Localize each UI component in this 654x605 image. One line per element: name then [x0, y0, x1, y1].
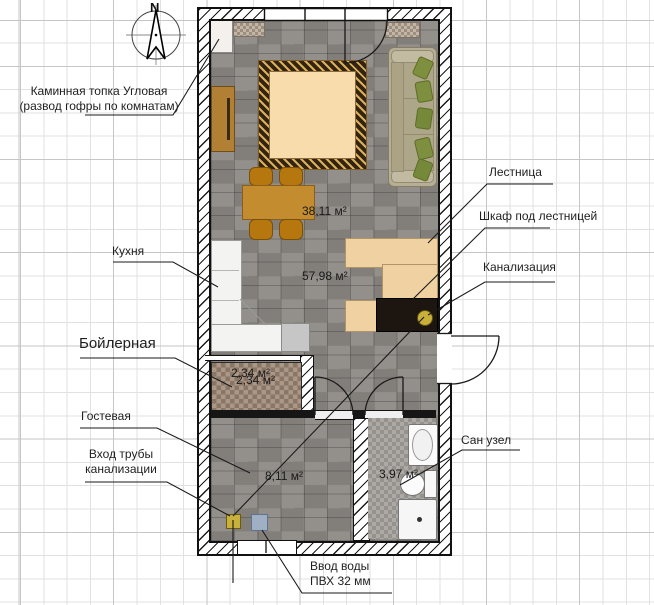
label-fireplace-line2: (развод гофры по комнатам): [16, 99, 182, 114]
sofa: [388, 47, 437, 187]
top-windows-opening: [264, 8, 388, 21]
sewer-riser-marker: [417, 310, 433, 326]
compass-north-label: N: [150, 0, 159, 15]
label-kitchen: Кухня: [112, 244, 144, 259]
area-total-floor: 57,98 м²: [302, 269, 348, 283]
label-closet-under-stairs: Шкаф под лестницей: [479, 209, 597, 224]
label-sewer-inlet-line2: канализации: [70, 462, 172, 477]
bathroom-sink: [408, 424, 438, 466]
kitchen-cabinet-line: [212, 270, 239, 271]
sink-basin: [412, 429, 433, 461]
dining-chair: [279, 167, 303, 186]
dining-chair: [279, 219, 303, 240]
rug: [258, 60, 367, 170]
area-bathroom: 3,97 м²: [379, 467, 418, 481]
label-water-inlet-line1: Ввод воды: [310, 559, 371, 574]
staircase-right: [382, 264, 438, 302]
label-bathroom: Сан узел: [461, 433, 511, 448]
boiler-room-top-wall: [205, 355, 312, 361]
floor-plan: N: [0, 0, 654, 605]
label-sewer-riser: Канализация: [483, 260, 556, 275]
sofa-pillow: [414, 80, 433, 103]
boiler-room-right-wall: [300, 355, 314, 417]
kitchen-appliance: [281, 323, 310, 352]
area-boiler-duplicate: 2,34 м²: [236, 373, 275, 387]
area-guest: 8,11 м²: [265, 469, 303, 483]
label-boiler-room: Бойлерная: [79, 336, 156, 351]
guest-door-opening: [315, 410, 353, 420]
label-sewer-inlet: Вход трубы канализации: [70, 447, 172, 477]
shower-drain: [417, 517, 422, 522]
water-inlet-marker: [251, 514, 268, 531]
shower-tray: [398, 499, 437, 540]
right-door-opening: [437, 333, 452, 384]
label-water-inlet: Ввод воды ПВХ 32 мм: [310, 559, 371, 589]
label-fireplace-line1: Каминная топка Угловая: [16, 84, 182, 99]
label-water-inlet-line2: ПВХ 32 мм: [310, 574, 371, 589]
rug-center: [269, 71, 356, 159]
compass-icon: N: [126, 0, 186, 65]
sofa-pillow: [415, 107, 434, 130]
dining-chair: [249, 167, 273, 186]
stone-pad-right: [385, 22, 420, 38]
label-fireplace: Каминная топка Угловая (развод гофры по …: [16, 84, 182, 114]
kitchen-cabinet-line: [212, 300, 239, 301]
label-stairs: Лестница: [489, 165, 542, 180]
fireplace: [211, 21, 233, 53]
area-living-zone: 38,11 м²: [302, 204, 347, 218]
label-sewer-inlet-line1: Вход трубы: [70, 447, 172, 462]
bottom-window-opening: [237, 540, 297, 555]
label-guest-room: Гостевая: [81, 409, 131, 424]
tv-stand: [211, 86, 235, 152]
toilet-tank: [424, 470, 437, 498]
tv-screen: [227, 98, 230, 140]
stone-pad-left: [233, 22, 265, 37]
sewer-inlet-marker: [226, 514, 241, 529]
dining-chair: [249, 219, 273, 240]
